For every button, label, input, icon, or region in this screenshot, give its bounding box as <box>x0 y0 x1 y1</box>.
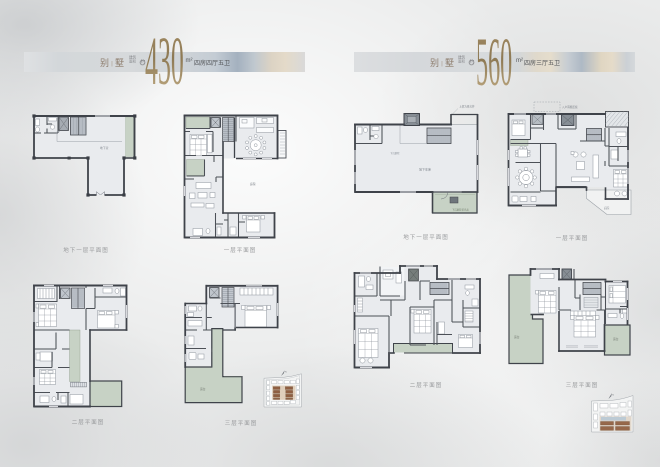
svg-text:露台: 露台 <box>613 337 619 341</box>
svg-text:露台: 露台 <box>200 387 206 391</box>
svg-text:N: N <box>612 394 614 396</box>
svg-text:地下车库: 地下车库 <box>419 167 431 172</box>
svg-text:庭院: 庭院 <box>250 182 256 186</box>
svg-text:N: N <box>285 372 287 374</box>
svg-text:后院: 后院 <box>604 206 610 210</box>
svg-text:露台: 露台 <box>514 335 520 339</box>
svg-text:入户雨棚盖板: 入户雨棚盖板 <box>562 105 578 109</box>
svg-text:下沉庭院: 下沉庭院 <box>390 151 400 155</box>
svg-text:下沉庭院采光井: 下沉庭院采光井 <box>452 208 469 212</box>
svg-text:地下室: 地下室 <box>100 146 109 150</box>
svg-text:上部为采光井: 上部为采光井 <box>459 105 475 109</box>
